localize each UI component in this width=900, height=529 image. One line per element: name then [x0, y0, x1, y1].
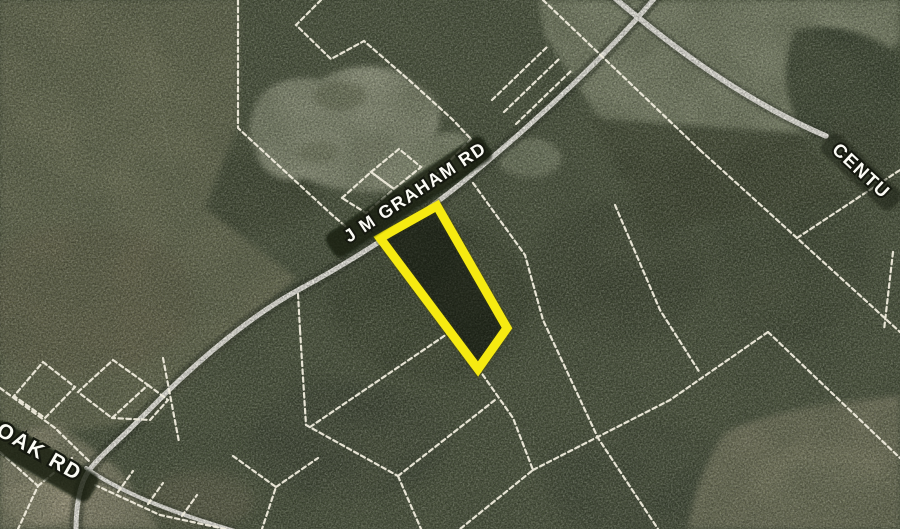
satellite-parcel-map: J M GRAHAM RD OAK RD CENTU: [0, 0, 900, 529]
listing-map-image[interactable]: J M GRAHAM RD OAK RD CENTU: [0, 0, 900, 529]
